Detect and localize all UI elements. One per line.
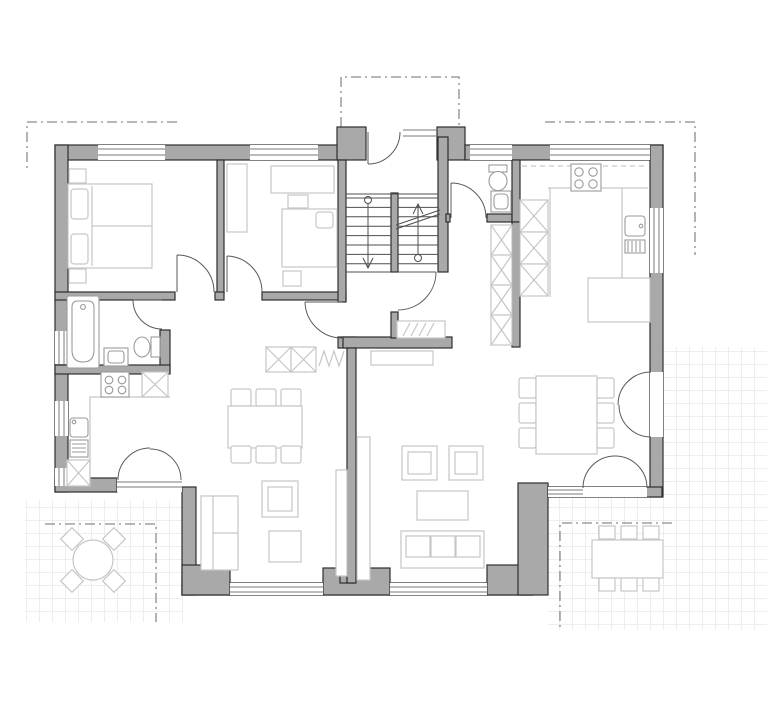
terrace-round-table (73, 540, 113, 580)
door-wc (451, 183, 486, 218)
wall-wc-east (512, 160, 520, 222)
pillow (71, 234, 88, 264)
window-cut-kitchen-east (650, 208, 663, 273)
terrace-chair (621, 578, 637, 591)
dining-chair (256, 389, 276, 406)
window-cut-south-right (390, 583, 487, 595)
window-cut-bathroom (55, 331, 68, 364)
dining-chair (597, 403, 614, 423)
window-cut-kitchen-west-low (55, 468, 68, 486)
armchair-seat (455, 452, 477, 474)
window-cut-south-left (230, 583, 323, 595)
french-door-rear (583, 456, 647, 488)
coat-rack-symbol (319, 351, 344, 366)
window-cut-step (548, 487, 583, 497)
door-cut-dining-east (650, 372, 663, 437)
french-door-east (618, 372, 651, 437)
entrance-bay-pier-left (337, 127, 366, 160)
entrance-door (368, 132, 400, 164)
sofa-cushion (456, 536, 480, 557)
dining-chair (231, 446, 251, 463)
terrace-table (592, 540, 663, 578)
sofa-cushion (406, 536, 430, 557)
terrace-chair (599, 578, 615, 591)
party-wall (347, 348, 356, 583)
wall-east (650, 145, 663, 497)
dining-chair (231, 389, 251, 406)
wall-bedrooms-south-c (262, 292, 346, 300)
burner (118, 376, 126, 384)
floor-plan-drawing (0, 0, 768, 702)
dining-chair (519, 403, 536, 423)
french-door-southwest (118, 448, 181, 480)
wall-wc-south-a (446, 214, 450, 222)
wardrobe (227, 164, 247, 232)
ottoman (269, 531, 301, 562)
sink-faucet (72, 420, 76, 424)
shelf (336, 470, 347, 576)
sideboard (371, 351, 433, 365)
terrace-chair (643, 526, 659, 539)
dining-chair (597, 378, 614, 398)
door-left-hall (305, 302, 342, 338)
wall-bedroom-divider (217, 160, 224, 293)
dining-chair (281, 446, 301, 463)
counter-peninsula (588, 278, 650, 322)
dining-chair (519, 428, 536, 448)
burner (575, 168, 583, 176)
wall-wc-south-b (487, 214, 512, 222)
nightstand (69, 169, 86, 183)
dining-chair (256, 446, 276, 463)
pillow (316, 212, 333, 228)
walkline-start-circle (415, 255, 422, 262)
washbasin-bowl (108, 351, 124, 363)
walkline-up-arrow (413, 204, 423, 254)
armchair-seat (408, 452, 431, 474)
counter-edges-left (90, 397, 170, 486)
door-cut-step (583, 487, 647, 497)
toilet-tank (151, 337, 160, 357)
dining-chair (597, 428, 614, 448)
wall-living-north (343, 337, 452, 348)
dining-chair (281, 389, 301, 406)
radiator (397, 321, 445, 338)
window-cut-kitchen-top (550, 145, 650, 160)
washbasin-bowl (494, 194, 508, 209)
door-right-hall (398, 272, 436, 310)
nightstand (69, 269, 86, 283)
window-cut-bedroom1 (98, 145, 165, 160)
wall-bedrooms-south-b (215, 292, 224, 300)
window-cut-wc (470, 145, 512, 160)
armchair-seat (268, 487, 292, 511)
burner (575, 180, 583, 188)
burner (589, 180, 597, 188)
sofa-cushion (431, 536, 455, 557)
wall-hall-kitchen (512, 222, 520, 347)
terrace-chair (643, 578, 659, 591)
burner (105, 376, 113, 384)
wall-southeast-step (518, 483, 548, 595)
pillow (71, 189, 88, 219)
dining-table-left (228, 406, 302, 448)
bathtub-inner (72, 301, 94, 362)
desk-chair (288, 195, 308, 208)
window-cut-kitchen-west (55, 401, 68, 436)
wall-west (55, 145, 68, 492)
burner (589, 168, 597, 176)
sidelight-entrance (403, 130, 436, 136)
burner (105, 386, 113, 394)
door-bedroom2 (227, 256, 262, 292)
tub-faucet (81, 305, 86, 310)
shelf (357, 437, 370, 580)
toilet-bowl (134, 337, 150, 357)
wall-stair-east (438, 137, 448, 272)
floor-plan-canvas (0, 0, 768, 702)
toilet-bowl (489, 172, 507, 191)
dining-table-right (536, 376, 597, 454)
door-bathroom (133, 300, 162, 329)
stair-spine-wall (391, 193, 398, 272)
window-cut-bedroom2 (250, 145, 318, 160)
door-bedroom1 (177, 255, 214, 292)
dining-chair (519, 378, 536, 398)
terrace-chair (621, 526, 637, 539)
wall-stair-west (338, 160, 346, 302)
coffee-table (417, 491, 468, 520)
terrace-chair (599, 526, 615, 539)
entrance-canopy-outline (341, 77, 459, 127)
door-cut-southwest (117, 478, 182, 492)
nightstand (283, 271, 301, 286)
sink-faucet (639, 224, 643, 228)
burner (118, 386, 126, 394)
desk (271, 166, 334, 193)
